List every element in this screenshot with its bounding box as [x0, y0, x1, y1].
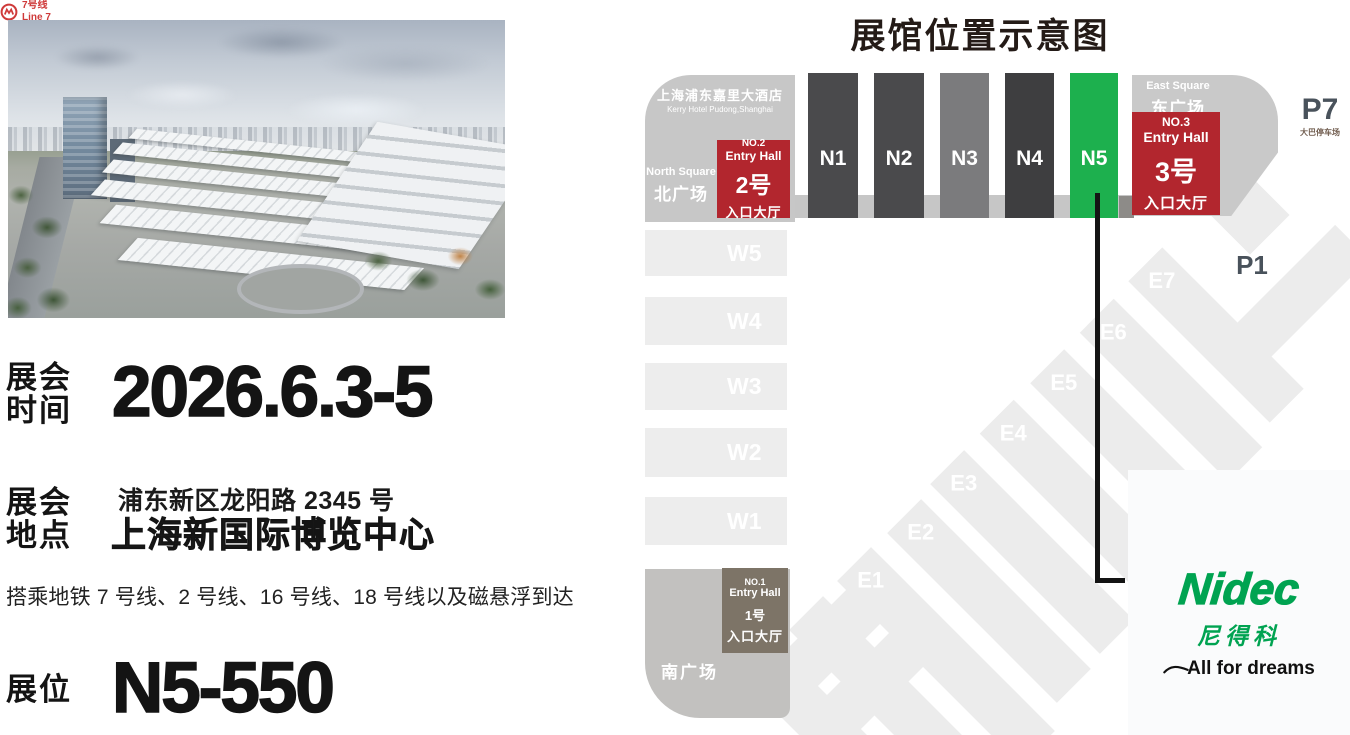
parking-p1-label: P1	[1226, 250, 1278, 281]
nidec-slogan: All for dreams	[1144, 658, 1334, 680]
exhibition-flyer: 展会 时间 2026.6.3-5 展会 地点 浦东新区龙阳路 2345 号 上海…	[0, 0, 1350, 735]
hall-w2: W2	[645, 428, 787, 477]
parking-p7-sub: 大巴停车场	[1294, 127, 1346, 138]
photo-trees	[356, 223, 505, 318]
swoosh-icon	[1163, 664, 1189, 674]
hall-n2: N2	[874, 73, 924, 218]
hall-w4: W4	[645, 297, 787, 345]
entry-hall-2: NO.2 Entry Hall 2号 入口大厅	[717, 140, 790, 218]
venue-aerial-photo	[8, 20, 505, 318]
schedule-dates: 2026.6.3-5	[112, 357, 432, 428]
hall-n1: N1	[808, 73, 858, 218]
schedule-label: 展会 时间	[6, 362, 72, 427]
hall-w5: W5	[645, 230, 787, 276]
booth-pointer-line	[1095, 193, 1100, 583]
parking-p7-label: P7 大巴停车场	[1294, 95, 1346, 138]
map-title: 展馆位置示意图	[700, 8, 1260, 59]
hall-label: E1	[857, 568, 884, 594]
photo-trees	[8, 163, 73, 318]
nidec-logo-panel: Nidec 尼得科 All for dreams	[1128, 470, 1350, 735]
hall-label: E6	[1100, 319, 1127, 345]
hall-n4: N4	[1005, 73, 1054, 218]
hall-label: E4	[1000, 420, 1027, 446]
venue-label: 展会 地点	[6, 487, 72, 552]
hall-label: E3	[950, 471, 977, 497]
transit-note: 搭乘地铁 7 号线、2 号线、16 号线、18 号线以及磁悬浮到达	[6, 581, 574, 611]
hall-label: E2	[907, 520, 934, 546]
north-square-label: North Square 北广场	[646, 166, 716, 205]
venue-name: 上海新国际博览中心	[111, 507, 435, 558]
hall-w3: W3	[645, 363, 787, 410]
photo-plaza	[237, 264, 364, 314]
south-square-label: 南广场	[661, 658, 718, 683]
booth-number: N5-550	[112, 653, 333, 724]
hall-n3: N3	[940, 73, 989, 218]
entry-hall-1: NO.1 Entry Hall 1号 入口大厅	[722, 568, 788, 653]
shanghai-metro-icon	[0, 3, 18, 21]
booth-pointer-foot	[1095, 578, 1125, 583]
entry-hall-3: NO.3 Entry Hall 3号 入口大厅	[1132, 112, 1220, 215]
kerry-hotel-label: 上海浦东嘉里大酒店 Kerry Hotel Pudong,Shanghai	[647, 85, 793, 114]
hall-label: E5	[1050, 370, 1077, 396]
hall-n5: N5	[1070, 73, 1118, 218]
nidec-chinese-name: 尼得科	[1144, 617, 1334, 651]
hall-w1: W1	[645, 497, 787, 545]
booth-label: 展位	[6, 674, 72, 707]
nidec-logo: Nidec 尼得科 All for dreams	[1144, 568, 1334, 735]
hall-label: E7	[1148, 268, 1175, 294]
nidec-wordmark: Nidec	[1142, 568, 1337, 612]
